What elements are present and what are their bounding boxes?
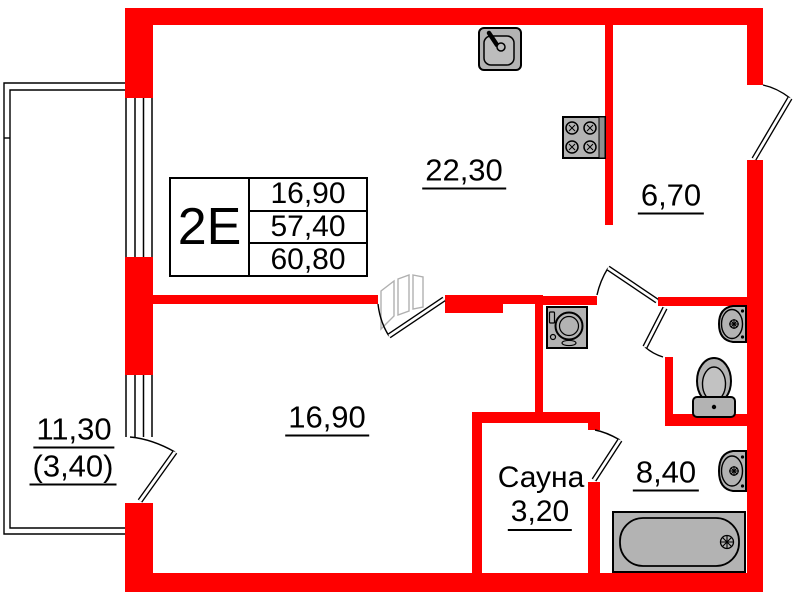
wall-sauna-top: [472, 412, 600, 423]
hall-corridor-door: [597, 268, 657, 301]
wall-sauna-right: [588, 482, 600, 577]
window-left-lower: [125, 375, 153, 437]
toilet-icon: [693, 358, 735, 417]
stove-icon: [563, 117, 605, 158]
wall-right-upper: [747, 8, 763, 85]
wall-bottom: [153, 573, 763, 592]
wall-sauna-left: [472, 412, 482, 577]
balcony-area-label: 11,30: [33, 414, 114, 449]
wall-corridor-vert: [535, 295, 543, 412]
wall-top: [125, 8, 763, 25]
bathroom-area-label: 8,40: [633, 457, 699, 492]
kitchen-sink-icon: [479, 28, 521, 70]
unit-area-row-1: 16,90: [250, 179, 366, 212]
unit-areas: 16,90 57,40 60,80: [250, 179, 366, 275]
balcony-reduced-area-label: (3,40): [30, 451, 117, 486]
window-left-upper: [125, 98, 153, 257]
unit-type-label: 2Е: [171, 179, 250, 275]
wall-mid-thick: [445, 295, 503, 313]
balcony-door: [130, 437, 175, 501]
floor-plan: 2Е 16,90 57,40 60,80 22,30 6,70 16,90 Са…: [0, 0, 800, 600]
sauna-name-label: Сауна: [498, 463, 585, 493]
wc-door: [645, 308, 665, 357]
kitchen-area-label: 22,30: [422, 155, 506, 190]
unit-info-table: 2Е 16,90 57,40 60,80: [169, 177, 368, 277]
sauna-area-label: 3,20: [508, 497, 572, 531]
sauna-door: [594, 430, 620, 480]
wall-left-a: [125, 8, 153, 98]
unit-area-row-3: 60,80: [250, 244, 366, 275]
hall-area-label: 6,70: [638, 180, 704, 215]
bathtub-icon: [613, 512, 745, 572]
unit-area-row-2: 57,40: [250, 212, 366, 245]
entrance-door: [754, 85, 790, 159]
wall-mid-a: [153, 295, 378, 304]
wall-kitchen-hall: [605, 25, 613, 225]
wall-right-lower: [747, 160, 763, 592]
living-area-label: 16,90: [285, 402, 369, 437]
floor-plan-drawing: [0, 0, 800, 600]
wall-mid-c: [543, 296, 597, 305]
wall-left-b: [125, 257, 153, 375]
wall-left-c: [125, 503, 153, 592]
wall-mid-d: [658, 297, 747, 306]
folding-door-panels: [381, 275, 423, 329]
washing-machine-icon: [547, 307, 587, 348]
bath-basin-icon: [719, 451, 746, 491]
wc-basin-icon: [719, 306, 746, 342]
wall-sauna-right-stub: [588, 412, 600, 430]
